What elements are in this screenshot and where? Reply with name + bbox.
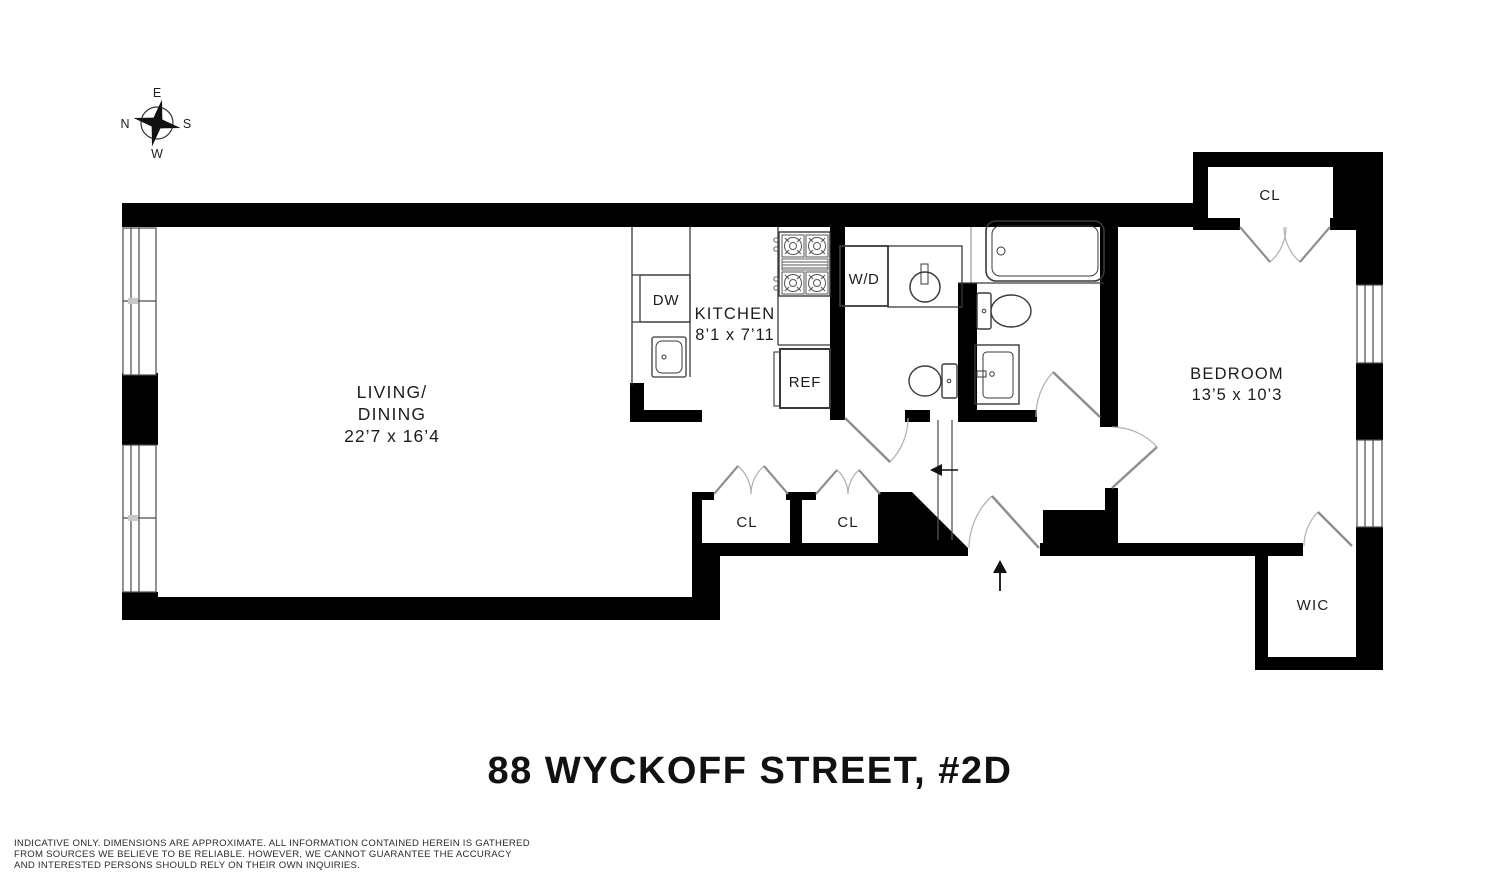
- tub-drain: [997, 247, 1005, 255]
- compass-right-label: S: [183, 117, 191, 131]
- wall-bath-bedroom-divider: [1100, 227, 1118, 427]
- laundry-sink-counter: [888, 246, 962, 307]
- wall-kitchen-laundry-divider: [830, 227, 845, 420]
- wall-wic-left: [1255, 543, 1268, 670]
- walls: [122, 152, 1383, 670]
- windows: [123, 228, 1382, 592]
- window-living-upper: [123, 228, 156, 375]
- stove: [774, 232, 830, 296]
- disclaimer-line-2: FROM SOURCES WE BELIEVE TO BE RELIABLE. …: [14, 850, 654, 861]
- wall-kitchen-l-horiz: [630, 410, 702, 422]
- wall-foyer-block: [1043, 510, 1118, 545]
- address-title: 88 WYCKOFF STREET, #2D: [0, 750, 1500, 793]
- bathroom-door: [1036, 372, 1100, 417]
- wall-top: [122, 203, 1195, 227]
- compass-left-label: N: [120, 117, 129, 131]
- bathroom-vanity-sink: [975, 345, 1019, 404]
- round-sink: [910, 272, 940, 302]
- living-dining-dimensions: 22’7 x 16’4: [344, 426, 440, 446]
- hall-closet-1-doors: [714, 466, 788, 494]
- wall-wic-right: [1356, 527, 1383, 670]
- bathroom-toilet: [977, 293, 1031, 329]
- disclaimer-line-3: AND INTERESTED PERSONS SHOULD RELY ON TH…: [14, 861, 654, 872]
- wall-left-mid: [122, 373, 158, 445]
- wall-right-mid: [1356, 363, 1383, 440]
- compass: E S W N: [120, 86, 191, 161]
- bedroom-door: [1112, 427, 1157, 488]
- compass-bottom-label: W: [151, 147, 163, 161]
- sink-faucet: [921, 264, 928, 284]
- hall-closet-2-label: CL: [837, 514, 858, 531]
- refrigerator-label: REF: [789, 374, 821, 391]
- bedroom-label: BEDROOM: [1190, 365, 1284, 383]
- bedroom-closet-doors: [1240, 227, 1330, 262]
- wall-laundry-jamb: [905, 410, 930, 422]
- kitchen-dimensions: 8’1 x 7’11: [695, 326, 774, 344]
- window-bedroom-upper: [1357, 285, 1382, 363]
- wic-label: WIC: [1297, 597, 1330, 614]
- dishwasher-label: DW: [653, 292, 680, 309]
- wall-bottom-living: [122, 597, 720, 620]
- entry-arrow: [993, 560, 1007, 591]
- washer-dryer-label: W/D: [849, 271, 880, 288]
- wall-diagonal: [878, 492, 968, 556]
- wall-wic-bottom: [1255, 657, 1383, 670]
- slide-direction-arrow: [930, 464, 942, 476]
- compass-star: [129, 95, 186, 152]
- wall-closet-jamb-left: [692, 492, 714, 500]
- wall-right-upper: [1356, 227, 1383, 285]
- bedroom-closet-opening: [1240, 214, 1330, 230]
- compass-top-label: E: [153, 86, 161, 100]
- bathtub: [958, 221, 1104, 283]
- kitchen-sink: [652, 337, 686, 377]
- wall-bedroom-door-jamb: [1105, 488, 1118, 513]
- window-bedroom-lower: [1357, 440, 1382, 527]
- wic-door: [1304, 512, 1352, 546]
- bedroom-closet-label: CL: [1259, 187, 1280, 204]
- laundry-door: [845, 418, 908, 462]
- living-dining-label-1: LIVING/: [357, 382, 428, 402]
- laundry-toilet: [909, 364, 957, 398]
- window-living-lower: [123, 445, 156, 592]
- wall-laundry-bath-divider: [958, 283, 977, 413]
- disclaimer: INDICATIVE ONLY. DIMENSIONS ARE APPROXIM…: [14, 839, 654, 871]
- entry-door: [969, 496, 1039, 548]
- bedroom-dimensions: 13’5 x 10’3: [1192, 386, 1283, 404]
- wall-closet-jamb-middle: [786, 492, 816, 500]
- wall-closet-bottom: [692, 543, 882, 556]
- kitchen-label: KITCHEN: [695, 305, 776, 323]
- hall-closet-1-label: CL: [736, 514, 757, 531]
- living-dining-label-2: DINING: [358, 404, 426, 424]
- hall-closet-2-doors: [816, 470, 880, 494]
- wall-bath-bottom: [958, 410, 1037, 422]
